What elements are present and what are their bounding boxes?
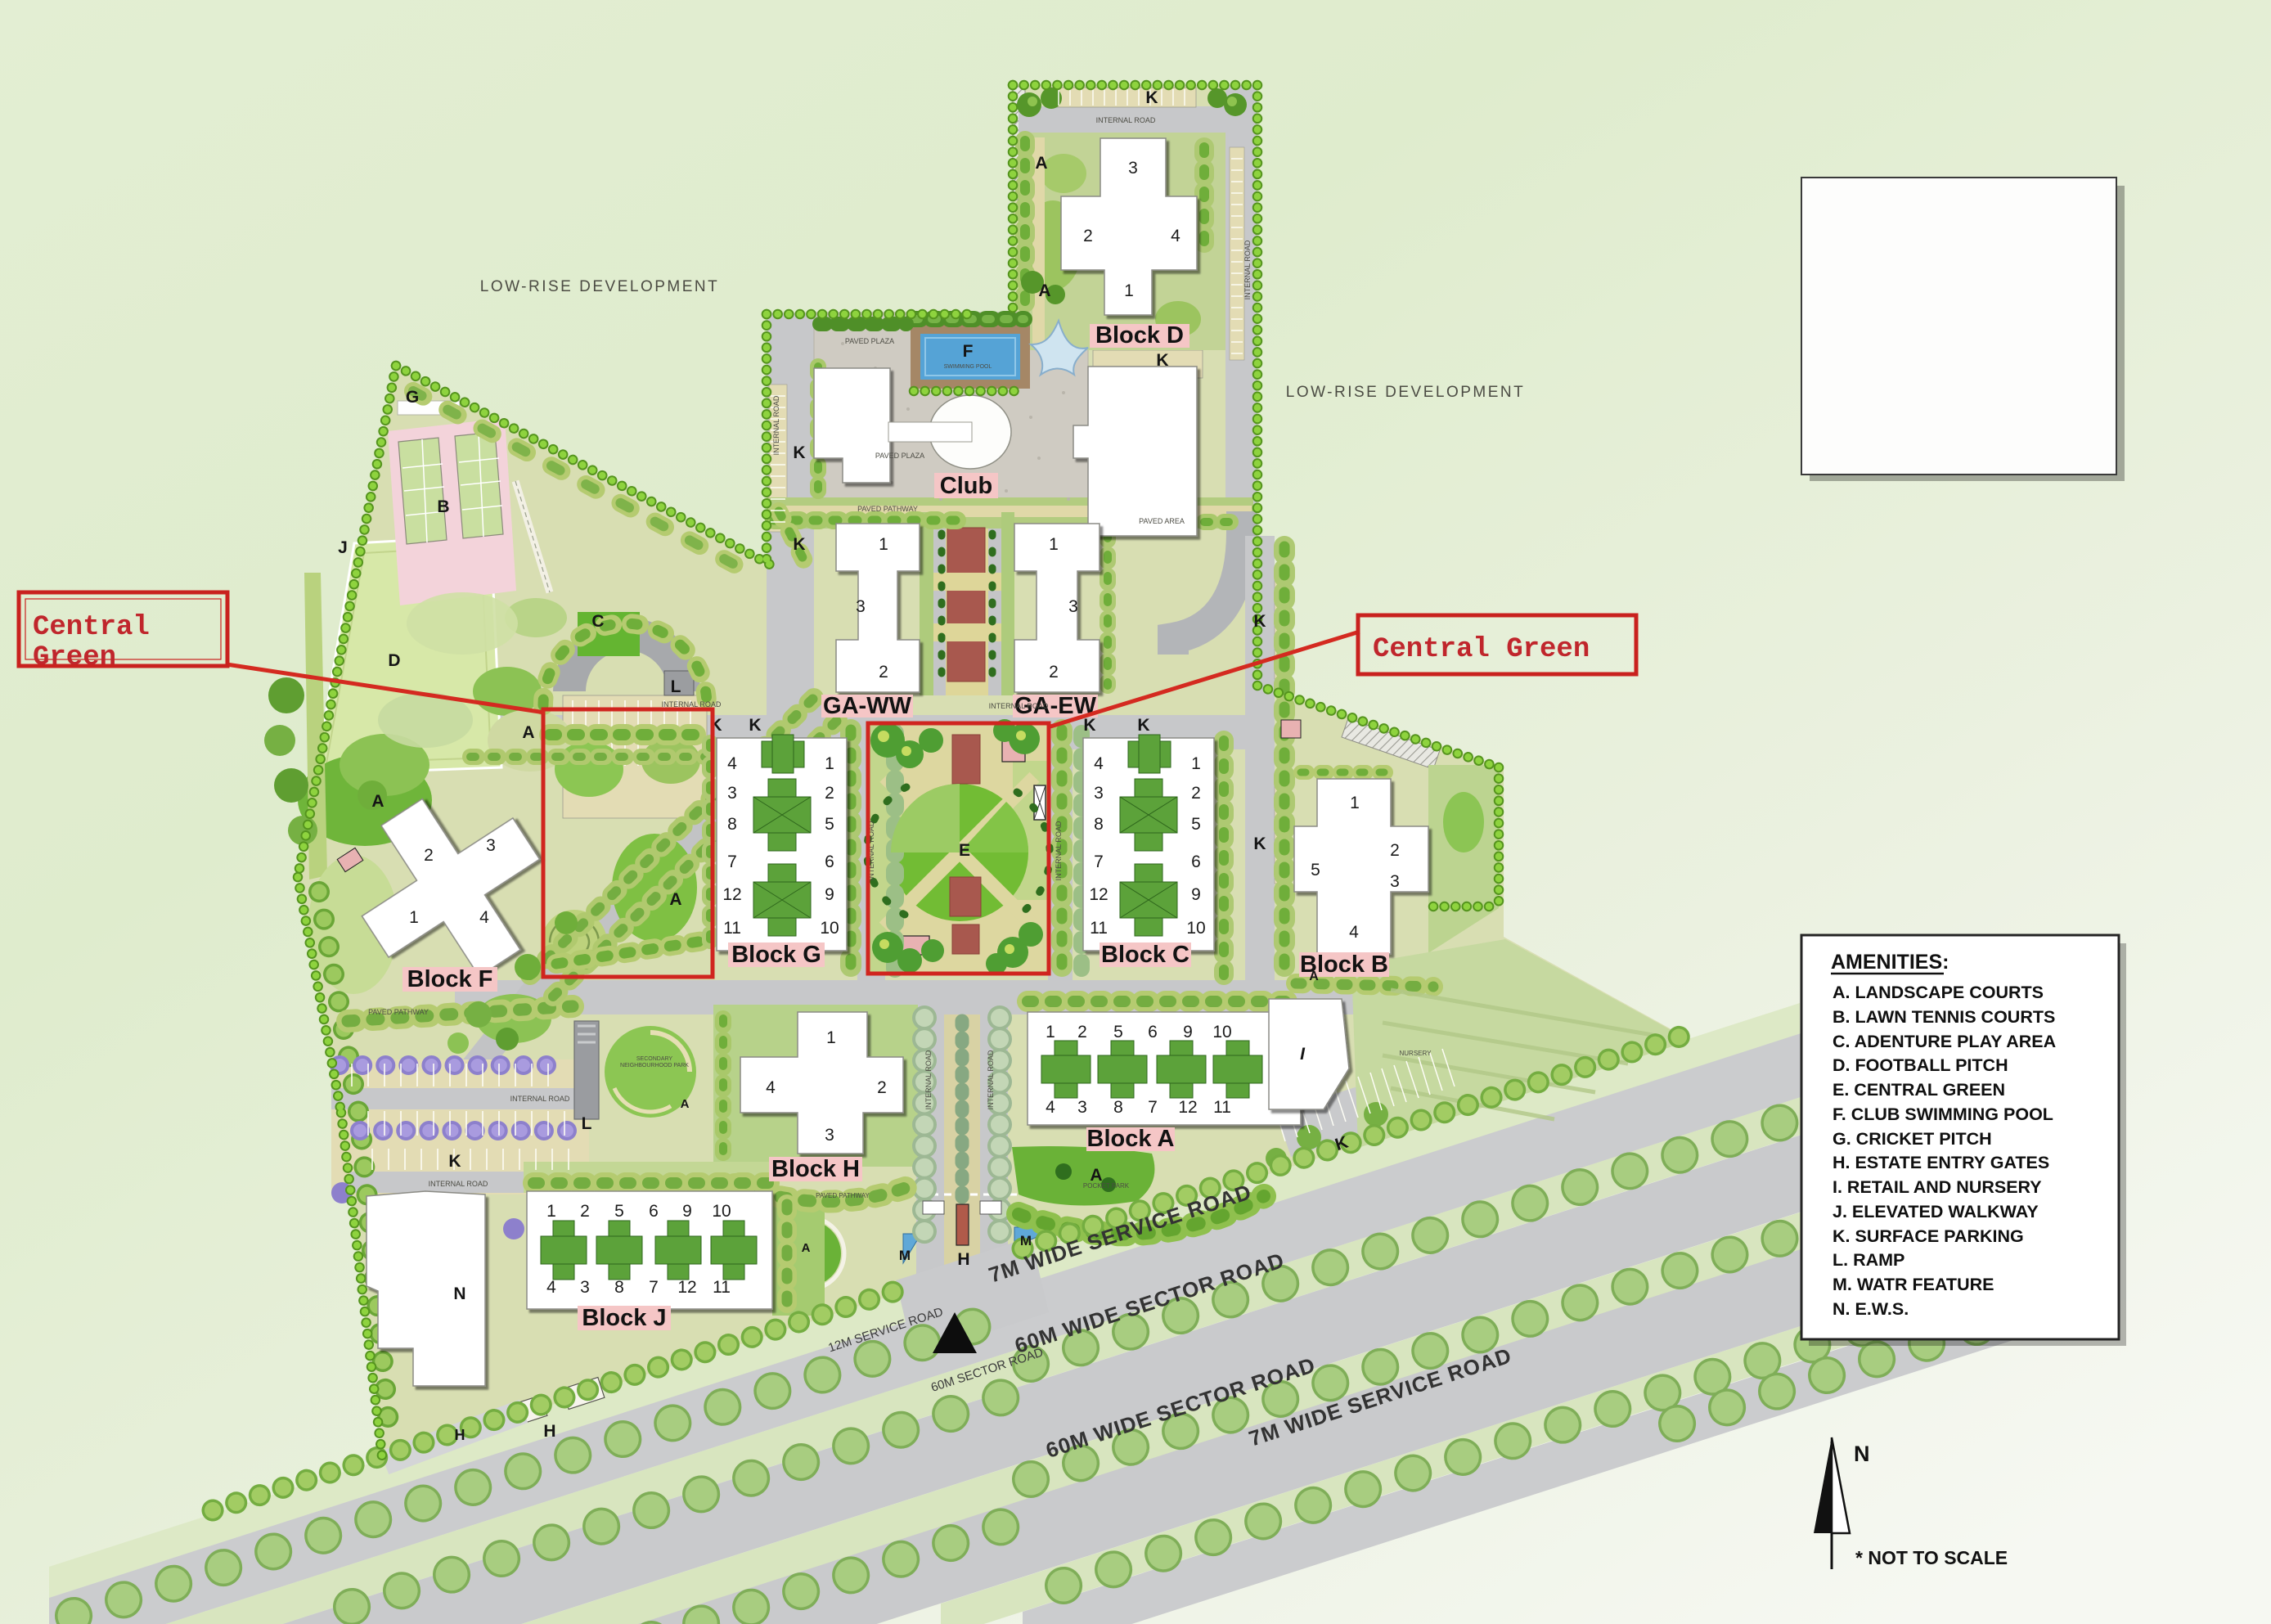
svg-text:K: K bbox=[793, 535, 805, 554]
svg-text:D. FOOTBALL PITCH: D. FOOTBALL PITCH bbox=[1833, 1055, 2008, 1075]
svg-text:3: 3 bbox=[1077, 1098, 1087, 1117]
svg-text:C: C bbox=[591, 612, 604, 631]
svg-text:B. LAWN TENNIS COURTS: B. LAWN TENNIS COURTS bbox=[1833, 1007, 2055, 1027]
svg-text:INTERNAL ROAD: INTERNAL ROAD bbox=[510, 1095, 570, 1103]
svg-text:4: 4 bbox=[1349, 923, 1359, 942]
svg-text:6: 6 bbox=[1148, 1023, 1158, 1041]
svg-text:3: 3 bbox=[580, 1278, 590, 1297]
svg-text:A. LANDSCAPE COURTS: A. LANDSCAPE COURTS bbox=[1833, 983, 2044, 1002]
svg-text:INTERNAL ROAD: INTERNAL ROAD bbox=[772, 395, 780, 455]
svg-text:INTERNAL ROAD: INTERNAL ROAD bbox=[1243, 240, 1252, 299]
svg-text:2: 2 bbox=[1191, 784, 1201, 803]
svg-text:4: 4 bbox=[479, 908, 489, 927]
svg-text:I. RETAIL AND NURSERY: I. RETAIL AND NURSERY bbox=[1833, 1177, 2042, 1197]
svg-text:E. CENTRAL GREEN: E. CENTRAL GREEN bbox=[1833, 1080, 2005, 1100]
svg-text:PAVED AREA: PAVED AREA bbox=[1139, 517, 1185, 525]
svg-text:1: 1 bbox=[825, 754, 834, 773]
svg-text:8: 8 bbox=[614, 1278, 624, 1297]
svg-text:G. CRICKET PITCH: G. CRICKET PITCH bbox=[1833, 1129, 1992, 1149]
svg-text:2: 2 bbox=[825, 784, 834, 803]
svg-text:D: D bbox=[388, 651, 400, 670]
svg-text:7: 7 bbox=[1094, 852, 1104, 871]
svg-text:1: 1 bbox=[826, 1028, 836, 1047]
svg-text:10: 10 bbox=[820, 919, 839, 938]
svg-text:7: 7 bbox=[727, 852, 737, 871]
svg-text:12: 12 bbox=[1178, 1098, 1197, 1117]
svg-text:PAVED PATHWAY: PAVED PATHWAY bbox=[857, 505, 918, 513]
svg-text:M: M bbox=[1020, 1233, 1032, 1248]
svg-text:F. CLUB SWIMMING POOL: F. CLUB SWIMMING POOL bbox=[1833, 1104, 2053, 1124]
svg-text:J: J bbox=[338, 538, 348, 557]
svg-text:A: A bbox=[802, 1241, 811, 1255]
svg-text:A: A bbox=[1309, 969, 1319, 983]
svg-text:K: K bbox=[1253, 834, 1266, 853]
svg-text:11: 11 bbox=[723, 919, 741, 938]
svg-text:2: 2 bbox=[424, 846, 434, 865]
svg-text:Block G: Block G bbox=[731, 942, 821, 968]
svg-text:2: 2 bbox=[580, 1202, 590, 1221]
svg-text:1: 1 bbox=[879, 535, 888, 554]
svg-text:4: 4 bbox=[766, 1078, 776, 1097]
svg-text:K: K bbox=[1083, 716, 1095, 735]
svg-text:K: K bbox=[749, 716, 761, 735]
svg-text:* NOT TO SCALE: * NOT TO SCALE bbox=[1855, 1547, 2008, 1568]
svg-text:Block C: Block C bbox=[1101, 942, 1189, 968]
svg-text:3: 3 bbox=[486, 836, 496, 855]
svg-text:3: 3 bbox=[825, 1126, 834, 1145]
svg-text:7: 7 bbox=[1148, 1098, 1158, 1117]
svg-text:LOW-RISE DEVELOPMENT: LOW-RISE DEVELOPMENT bbox=[1286, 384, 1525, 401]
svg-text:PAVED PATHWAY: PAVED PATHWAY bbox=[816, 1192, 870, 1199]
svg-text:4: 4 bbox=[546, 1278, 556, 1297]
svg-text:8: 8 bbox=[1094, 815, 1104, 834]
svg-text:E: E bbox=[959, 841, 970, 860]
svg-text:3: 3 bbox=[1068, 597, 1078, 616]
svg-text:11: 11 bbox=[713, 1278, 731, 1297]
svg-text:L: L bbox=[671, 677, 681, 696]
svg-text:POCKET PARK: POCKET PARK bbox=[1083, 1182, 1130, 1190]
svg-text:4: 4 bbox=[1171, 227, 1180, 245]
svg-text:5: 5 bbox=[1113, 1023, 1123, 1041]
svg-text:Block F: Block F bbox=[407, 966, 493, 992]
svg-text:A: A bbox=[681, 1097, 690, 1111]
svg-text:K: K bbox=[1253, 612, 1266, 631]
svg-text:K: K bbox=[1137, 716, 1149, 735]
svg-text:10: 10 bbox=[1186, 919, 1205, 938]
svg-text:Block J: Block J bbox=[582, 1305, 666, 1331]
svg-text:3: 3 bbox=[856, 597, 866, 616]
svg-text:K: K bbox=[1156, 351, 1168, 370]
svg-text:G: G bbox=[406, 388, 419, 407]
svg-text:Club: Club bbox=[940, 473, 992, 499]
svg-text:2: 2 bbox=[877, 1078, 887, 1097]
svg-text:A: A bbox=[1035, 154, 1047, 173]
svg-text:PAVED PLAZA: PAVED PLAZA bbox=[845, 337, 894, 345]
svg-text:INTERNAL ROAD: INTERNAL ROAD bbox=[924, 1050, 933, 1109]
svg-text:NEIGHBOURHOOD PARK: NEIGHBOURHOOD PARK bbox=[620, 1063, 689, 1068]
svg-text:A: A bbox=[371, 792, 384, 811]
svg-text:H: H bbox=[543, 1422, 555, 1441]
svg-text:9: 9 bbox=[825, 885, 834, 904]
svg-text:K: K bbox=[448, 1152, 461, 1171]
svg-text:12: 12 bbox=[677, 1278, 696, 1297]
svg-text:8: 8 bbox=[727, 815, 737, 834]
svg-text:INTERNAL ROAD: INTERNAL ROAD bbox=[1096, 116, 1156, 124]
svg-text:INTERNAL ROAD: INTERNAL ROAD bbox=[429, 1180, 488, 1188]
svg-text:3: 3 bbox=[727, 784, 737, 803]
svg-text:1: 1 bbox=[1191, 754, 1201, 773]
svg-text:PAVED PLAZA: PAVED PLAZA bbox=[875, 452, 924, 460]
svg-text:M. WATR FEATURE: M. WATR FEATURE bbox=[1833, 1275, 1994, 1294]
svg-text:2: 2 bbox=[1083, 227, 1093, 245]
svg-text:8: 8 bbox=[1113, 1098, 1123, 1117]
svg-text:12: 12 bbox=[1089, 885, 1108, 904]
svg-text:N: N bbox=[453, 1284, 465, 1303]
svg-text:4: 4 bbox=[727, 754, 737, 773]
svg-text:5: 5 bbox=[1191, 815, 1201, 834]
svg-text:Central: Central bbox=[33, 612, 150, 643]
svg-text:2: 2 bbox=[879, 663, 888, 682]
svg-text:3: 3 bbox=[1128, 159, 1138, 178]
svg-text:N: N bbox=[1854, 1442, 1870, 1466]
svg-text:PAVED PATHWAY: PAVED PATHWAY bbox=[368, 1008, 429, 1016]
svg-text:A: A bbox=[669, 890, 681, 909]
svg-text:9: 9 bbox=[1183, 1023, 1193, 1041]
svg-text:9: 9 bbox=[1191, 885, 1201, 904]
svg-text:H: H bbox=[455, 1427, 465, 1443]
svg-text:5: 5 bbox=[825, 815, 834, 834]
svg-text:K: K bbox=[793, 443, 805, 462]
svg-text:10: 10 bbox=[1212, 1023, 1231, 1041]
svg-text:6: 6 bbox=[1191, 852, 1201, 871]
svg-text:7: 7 bbox=[649, 1278, 659, 1297]
svg-text:2: 2 bbox=[1049, 663, 1059, 682]
svg-text:1: 1 bbox=[1049, 535, 1059, 554]
svg-text:4: 4 bbox=[1094, 754, 1104, 773]
svg-text:A: A bbox=[1038, 281, 1050, 300]
svg-text:A: A bbox=[522, 723, 534, 742]
svg-text:1: 1 bbox=[1046, 1023, 1055, 1041]
svg-text:J. ELEVATED WALKWAY: J. ELEVATED WALKWAY bbox=[1833, 1202, 2039, 1221]
svg-text:L: L bbox=[582, 1114, 592, 1133]
svg-text:H. ESTATE ENTRY GATES: H. ESTATE ENTRY GATES bbox=[1833, 1153, 2049, 1172]
svg-text:LOW-RISE DEVELOPMENT: LOW-RISE DEVELOPMENT bbox=[480, 278, 719, 295]
svg-text:Block H: Block H bbox=[771, 1156, 860, 1182]
svg-text:N. E.W.S.: N. E.W.S. bbox=[1833, 1299, 1909, 1319]
svg-text:1: 1 bbox=[1350, 794, 1360, 812]
svg-text:11: 11 bbox=[1090, 919, 1108, 938]
svg-text:2: 2 bbox=[1077, 1023, 1087, 1041]
svg-text:5: 5 bbox=[614, 1202, 624, 1221]
svg-text:Central Green: Central Green bbox=[1373, 634, 1590, 665]
svg-text:4: 4 bbox=[1046, 1098, 1055, 1117]
svg-text:B: B bbox=[437, 497, 449, 516]
svg-text:INTERNAL ROAD: INTERNAL ROAD bbox=[1055, 821, 1063, 880]
svg-text:C. ADENTURE PLAY AREA: C. ADENTURE PLAY AREA bbox=[1833, 1032, 2056, 1051]
svg-text:SWIMMING POOL: SWIMMING POOL bbox=[944, 364, 992, 370]
svg-text:K. SURFACE PARKING: K. SURFACE PARKING bbox=[1833, 1226, 2024, 1246]
svg-text:M: M bbox=[899, 1248, 911, 1263]
svg-text:INTERNAL ROAD: INTERNAL ROAD bbox=[987, 1050, 995, 1109]
svg-text:1: 1 bbox=[546, 1202, 556, 1221]
svg-text:AMENITIES:: AMENITIES: bbox=[1831, 951, 1949, 974]
svg-text:1: 1 bbox=[409, 908, 419, 927]
svg-text:Block A: Block A bbox=[1087, 1126, 1175, 1152]
svg-text:F: F bbox=[963, 342, 974, 361]
svg-text:Block D: Block D bbox=[1095, 322, 1184, 349]
svg-text:K: K bbox=[1145, 88, 1158, 107]
svg-text:12: 12 bbox=[722, 885, 741, 904]
svg-text:GA-WW: GA-WW bbox=[823, 693, 912, 719]
svg-text:5: 5 bbox=[1311, 861, 1320, 879]
svg-text:3: 3 bbox=[1390, 872, 1400, 891]
svg-text:10: 10 bbox=[712, 1202, 731, 1221]
svg-text:H: H bbox=[957, 1250, 969, 1269]
svg-text:6: 6 bbox=[825, 852, 834, 871]
svg-text:3: 3 bbox=[1094, 784, 1104, 803]
svg-text:SECONDARY: SECONDARY bbox=[636, 1056, 673, 1062]
svg-text:INTERNAL ROAD: INTERNAL ROAD bbox=[989, 702, 1049, 710]
svg-text:1: 1 bbox=[1124, 281, 1134, 300]
svg-text:11: 11 bbox=[1213, 1098, 1231, 1117]
svg-text:NURSERY: NURSERY bbox=[1400, 1050, 1432, 1057]
svg-text:6: 6 bbox=[649, 1202, 659, 1221]
svg-text:2: 2 bbox=[1390, 841, 1400, 860]
svg-text:Green: Green bbox=[33, 642, 116, 673]
svg-text:L. RAMP: L. RAMP bbox=[1833, 1250, 1904, 1270]
svg-text:9: 9 bbox=[682, 1202, 692, 1221]
